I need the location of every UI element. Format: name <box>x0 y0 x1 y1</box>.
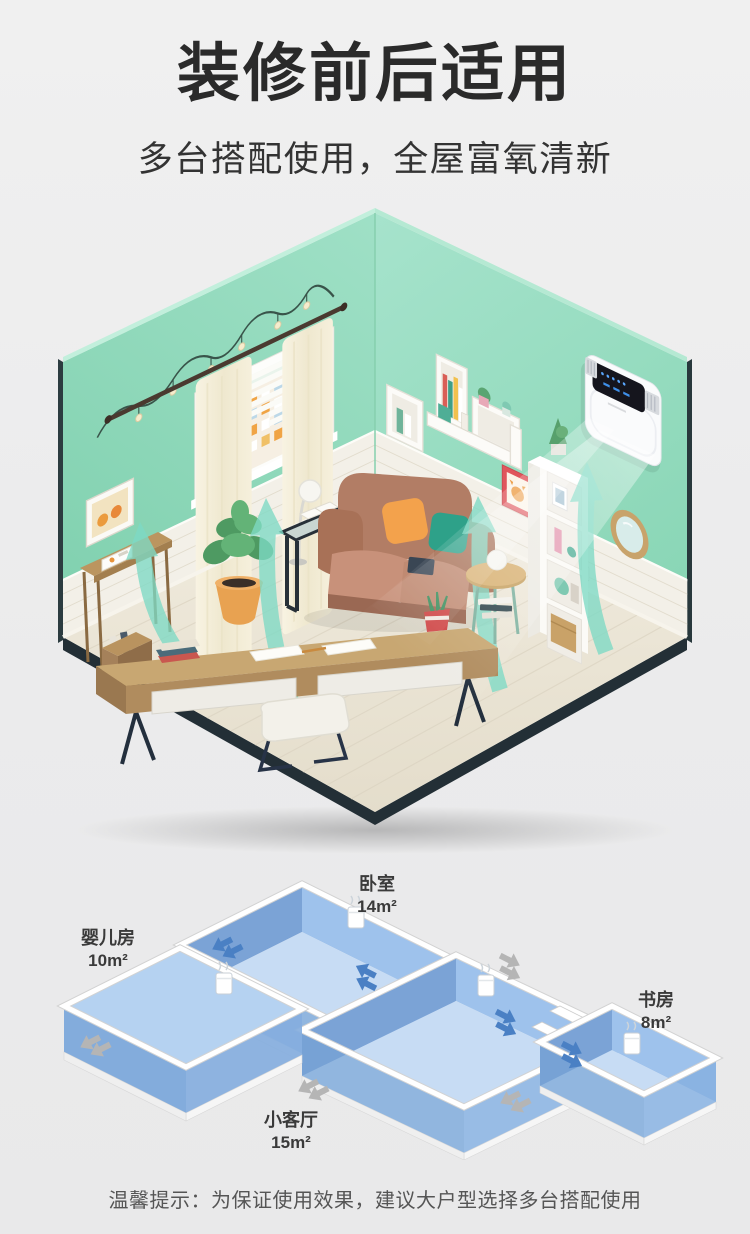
page-title: 装修前后适用 <box>0 38 750 110</box>
floor-plan: 婴儿房 10m² 卧室 14m² 小客厅 15m² 书房 8m² <box>0 860 750 1160</box>
plan-label-living-name: 小客厅 <box>264 1109 318 1130</box>
plan-label-study-name: 书房 <box>638 989 674 1010</box>
page-subtitle: 多台搭配使用，全屋富氧清新 <box>0 131 750 182</box>
curtain-right <box>282 316 333 636</box>
plan-label-study-area: 8m² <box>641 1013 672 1032</box>
footer-tip: 温馨提示：为保证使用效果，建议大户型选择多台搭配使用 <box>0 1184 750 1213</box>
plan-label-baby-area: 10m² <box>88 951 128 970</box>
room-illustration <box>0 195 750 855</box>
pillow-orange <box>381 497 430 546</box>
plan-label-living-area: 15m² <box>271 1133 311 1152</box>
plan-label-baby-name: 婴儿房 <box>81 927 135 948</box>
plan-label-bedroom-name: 卧室 <box>359 873 395 894</box>
page: 装修前后适用 多台搭配使用，全屋富氧清新 <box>0 0 750 1234</box>
plan-label-bedroom-area: 14m² <box>357 897 397 916</box>
